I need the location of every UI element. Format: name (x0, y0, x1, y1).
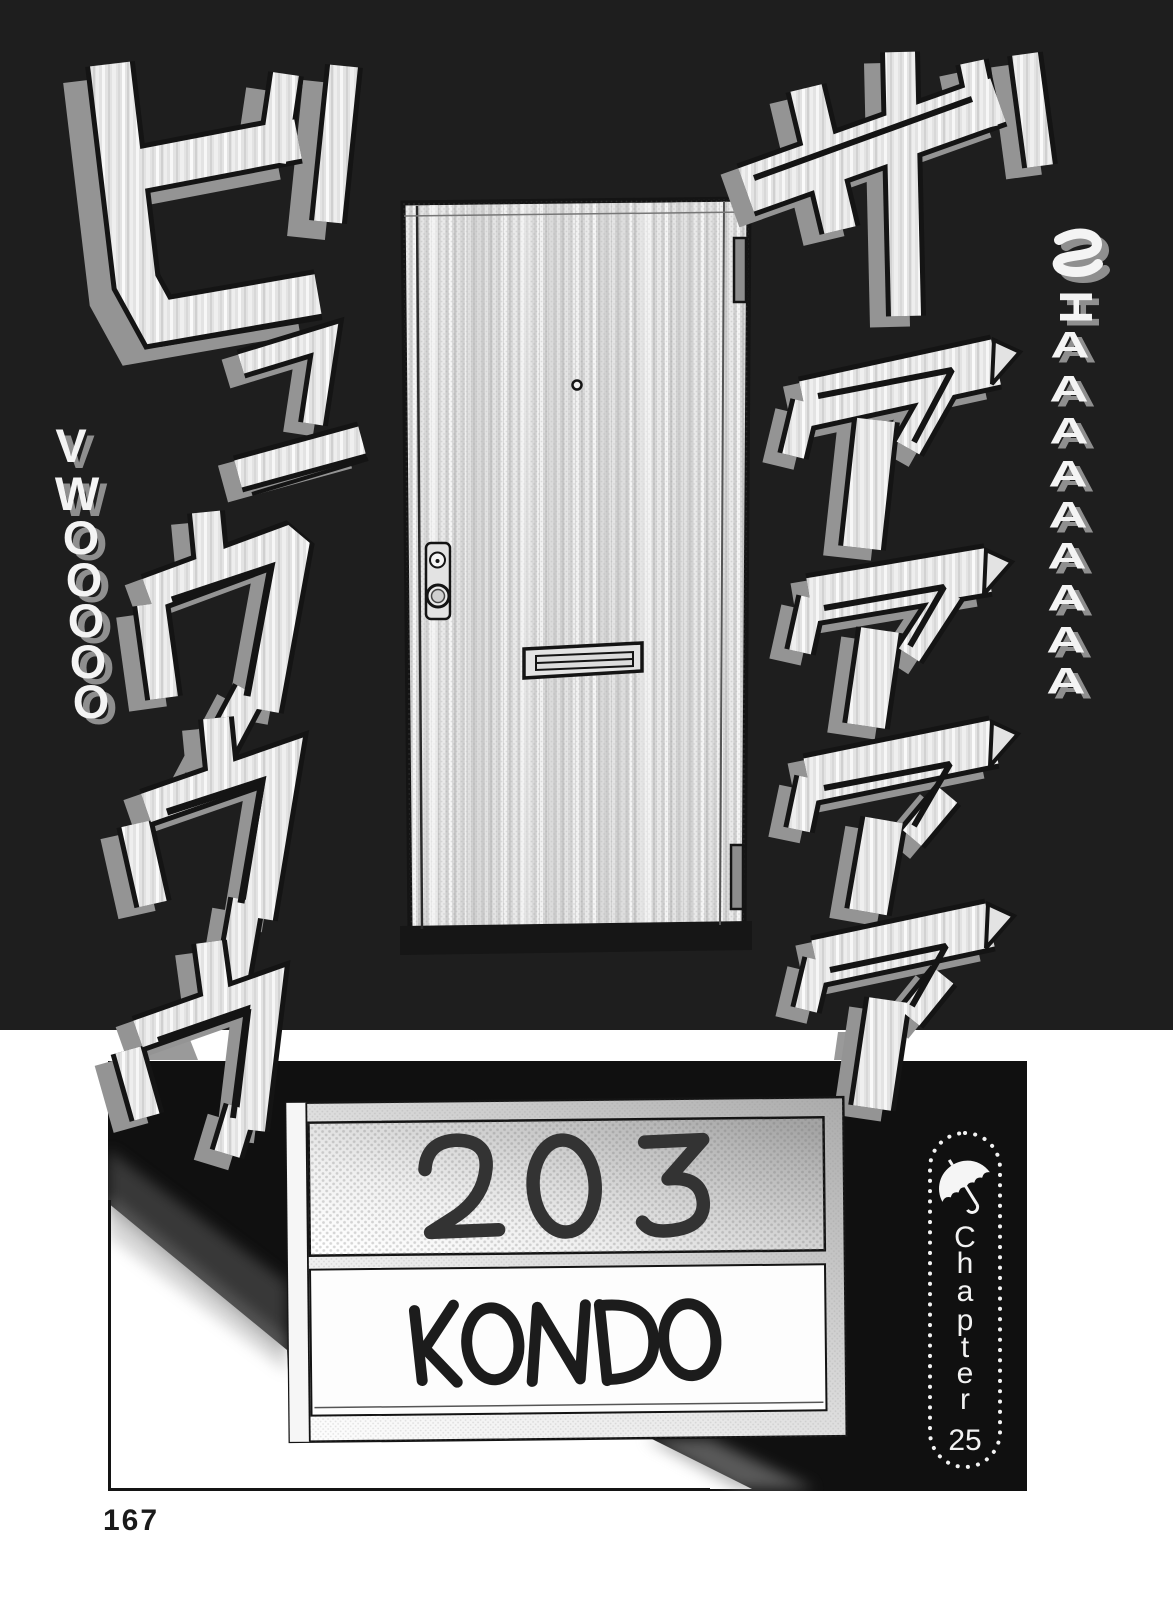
svg-text:A: A (1046, 619, 1085, 660)
svg-text:A: A (1046, 660, 1085, 701)
svg-text:A: A (1047, 535, 1086, 576)
svg-text:167: 167 (103, 1504, 159, 1537)
svg-text:r: r (960, 1383, 970, 1416)
svg-text:O: O (73, 675, 110, 728)
svg-text:A: A (1050, 324, 1089, 365)
svg-text:25: 25 (948, 1424, 981, 1457)
svg-text:A: A (1048, 494, 1087, 535)
svg-text:A: A (1049, 368, 1088, 409)
svg-text:V: V (55, 419, 87, 472)
svg-text:A: A (1049, 410, 1088, 451)
svg-text:A: A (1047, 577, 1086, 618)
svg-text:H: H (1050, 290, 1102, 323)
svg-text:A: A (1048, 453, 1087, 494)
